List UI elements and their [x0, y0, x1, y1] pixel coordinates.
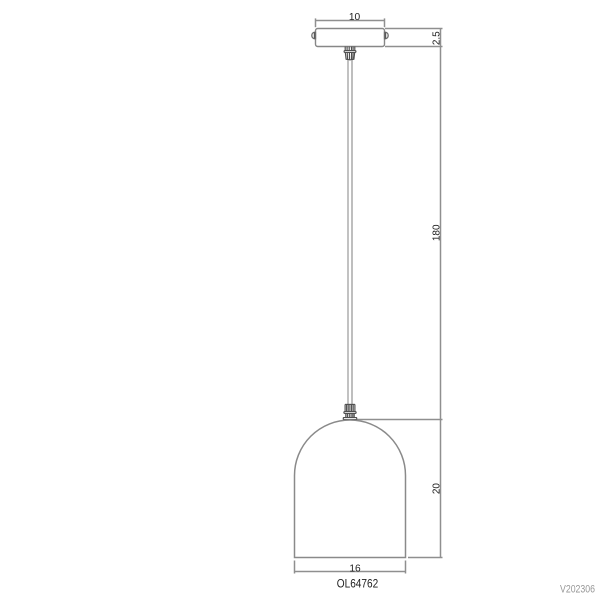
svg-text:180: 180: [432, 224, 443, 241]
svg-text:10: 10: [349, 12, 361, 23]
svg-text:V202306: V202306: [560, 584, 595, 596]
svg-text:2.5: 2.5: [432, 31, 443, 45]
svg-text:16: 16: [349, 564, 361, 575]
svg-text:OL64762: OL64762: [337, 578, 379, 591]
svg-text:20: 20: [432, 483, 443, 495]
